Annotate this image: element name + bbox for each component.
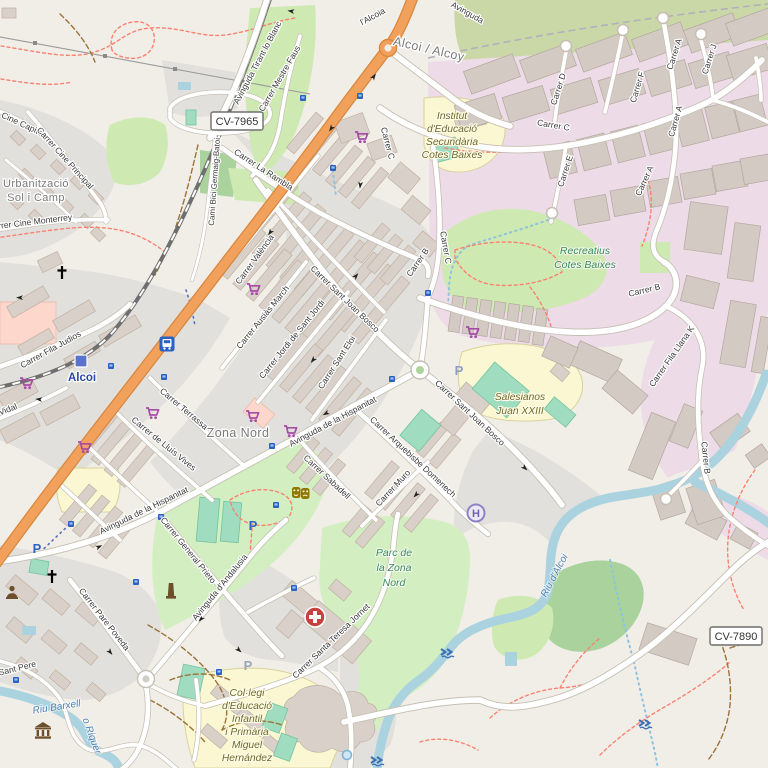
svg-text:Col·legi: Col·legi [230, 688, 266, 699]
svg-text:P: P [244, 658, 253, 673]
svg-text:P: P [455, 363, 464, 378]
bus-station-icon [160, 337, 175, 352]
svg-text:Hernández: Hernández [222, 753, 272, 764]
svg-text:H: H [472, 508, 480, 520]
svg-text:d'Educació: d'Educació [427, 124, 477, 135]
place-label-zona-nord: Zona Nord [207, 426, 270, 440]
svg-text:Cotes Baixes: Cotes Baixes [422, 150, 483, 161]
svg-text:Cotes Baixes: Cotes Baixes [554, 259, 617, 271]
svg-text:Miguel: Miguel [232, 740, 263, 751]
svg-text:d'Educació: d'Educació [222, 701, 272, 712]
svg-text:i Primària: i Primària [225, 727, 269, 738]
svg-text:la Zona: la Zona [376, 562, 411, 574]
svg-text:Parc de: Parc de [376, 547, 412, 559]
svg-text:Salesianos: Salesianos [495, 392, 545, 403]
svg-text:CV-7890: CV-7890 [715, 631, 758, 643]
svg-text:P: P [33, 541, 42, 556]
clinic-icon [305, 607, 325, 627]
svg-text:Recreatius: Recreatius [560, 245, 611, 257]
map-viewport[interactable]: H P P P P Avinguda Tirant lo Blanc Carre… [0, 0, 768, 768]
station-label-alcoi: Alcoi [68, 372, 96, 384]
svg-text:Infantil: Infantil [232, 714, 263, 725]
helipad-icon: H [468, 505, 485, 522]
map-canvas[interactable]: H P P P P Avinguda Tirant lo Blanc Carre… [0, 0, 768, 768]
road-ref-badge-cv7890: CV-7890 [710, 627, 762, 645]
svg-text:Institut: Institut [437, 111, 468, 122]
svg-text:Nord: Nord [383, 577, 407, 589]
place-label-urbanitzacio-1: Urbanització [3, 178, 69, 190]
svg-text:Juan XXIII: Juan XXIII [495, 406, 544, 417]
spring-icon [343, 751, 352, 760]
svg-text:CV-7965: CV-7965 [216, 116, 259, 128]
place-label-urbanitzacio-2: Sol i Camp [7, 192, 65, 204]
road-ref-badge-cv7965: CV-7965 [211, 112, 263, 130]
svg-text:Secundària: Secundària [426, 137, 478, 148]
railway-station-icon [75, 355, 87, 367]
svg-text:P: P [249, 518, 258, 533]
